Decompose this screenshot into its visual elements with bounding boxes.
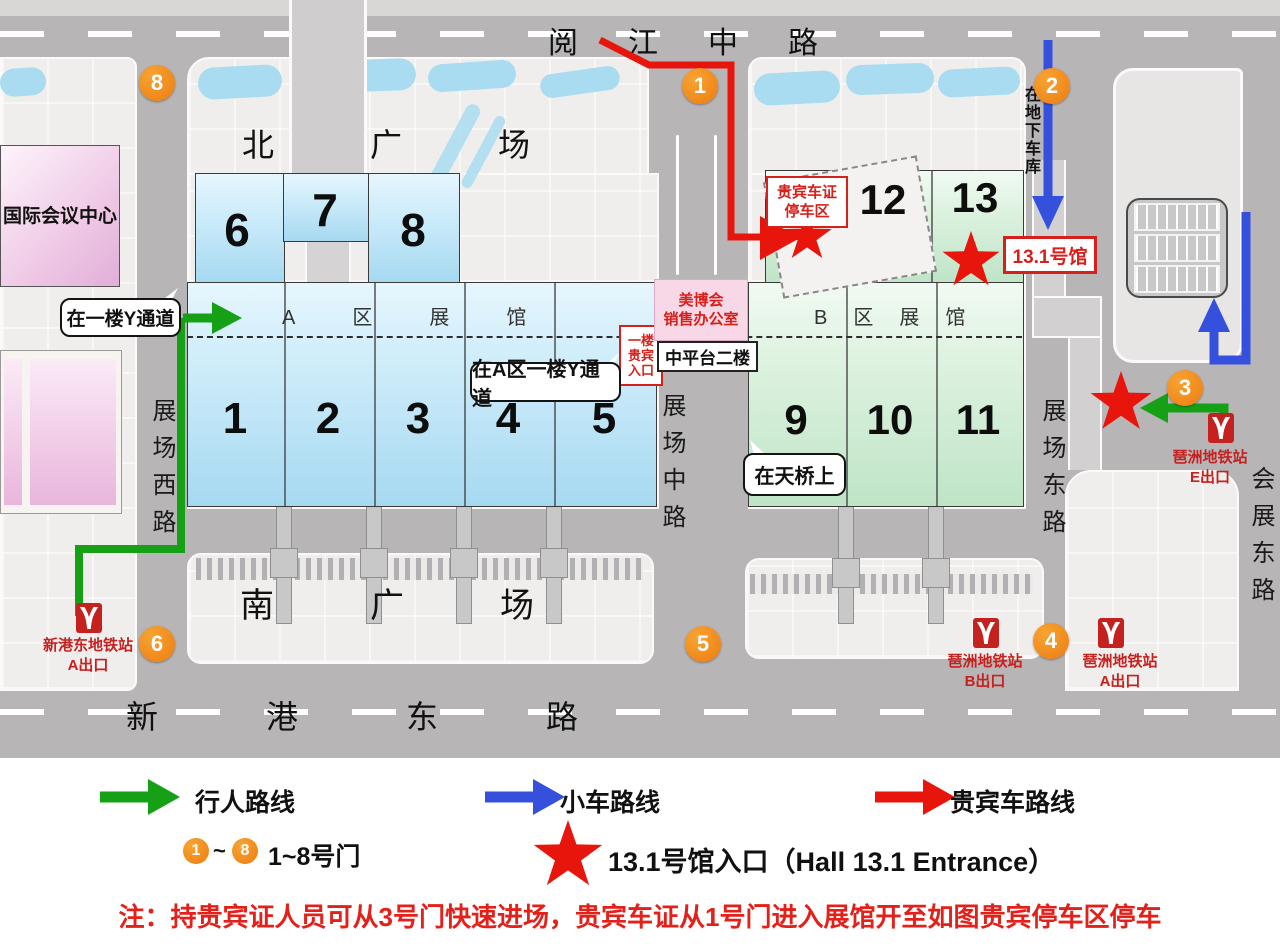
south-plaza-a-steps [196, 558, 643, 580]
a-zone-y-corridor-text: 在A区一楼Y通道 [472, 353, 619, 411]
pier-base [450, 548, 478, 578]
zone-b-label: B区展馆 [814, 301, 991, 330]
gate-1: 1 [682, 68, 718, 104]
parking-row [1134, 234, 1220, 262]
hall-13-1-text: 13.1号馆 [1013, 242, 1088, 269]
legend-gate-1-icon: 1 [183, 838, 209, 864]
south-plaza-b-steps [750, 574, 1033, 594]
y-corridor-dashed-line [187, 336, 1022, 338]
sales-office-box: 美博会 销售办公室 [654, 279, 748, 341]
legend-car-label: 小车路线 [560, 783, 660, 819]
metro-pazhou-a-label: 琶洲地铁站 A出口 [1050, 652, 1190, 692]
metro-icon-pazhou-e [1208, 413, 1234, 443]
conference-center-annex [0, 350, 122, 514]
annex-panel [30, 359, 116, 505]
legend-gates-label: 1~8号门 [268, 837, 360, 873]
parking-row [1134, 265, 1220, 293]
gate-5: 5 [685, 626, 721, 662]
station-exit: A出口 [1050, 672, 1190, 692]
vip-note: 注：持贵宾证人员可从3号门快速进场，贵宾车证从1号门进入展馆开至如图贵宾停车区停… [0, 897, 1280, 934]
station-exit: B出口 [915, 672, 1055, 692]
hall-10-number: 10 [865, 396, 915, 444]
hall-13-number: 13 [950, 174, 1000, 222]
lane-line [676, 135, 679, 275]
metro-icon-pazhou-a [1098, 618, 1124, 648]
vip-parking-callout: 贵宾车证 停车区 [766, 176, 848, 228]
vip-entrance-line2: 贵宾 [628, 348, 654, 363]
zone-a-label: A区展馆 [282, 301, 583, 330]
gate-8: 8 [139, 65, 175, 101]
east-walkway-connector [1032, 296, 1102, 338]
gate-3: 3 [1167, 370, 1203, 406]
station-exit: E出口 [1150, 468, 1270, 488]
water-strip [0, 66, 47, 97]
mid-platform-text: 中平台二楼 [665, 344, 750, 369]
road-label-xingang: 新港东路 [126, 692, 686, 738]
metro-pazhou-b-label: 琶洲地铁站 B出口 [915, 652, 1055, 692]
parking-structure [1126, 198, 1228, 298]
mid-platform-box: 中平台二楼 [657, 341, 758, 372]
annex-panel [4, 359, 22, 505]
sales-office-line1: 美博会 [678, 291, 723, 310]
station-name: 琶洲地铁站 [915, 652, 1055, 672]
legend-star-icon [534, 820, 602, 885]
lane-line [714, 135, 717, 275]
pier-base [270, 548, 298, 578]
gate-2: 2 [1034, 68, 1070, 104]
metro-pazhou-e-label: 琶洲地铁站 E出口 [1150, 448, 1270, 488]
hall-12-number: 12 [858, 176, 908, 224]
pier-base [832, 558, 860, 588]
pier-base [540, 548, 568, 578]
a-zone-y-corridor-bubble: 在A区一楼Y通道 [470, 362, 621, 402]
road-label-middle: 展场中路 [654, 393, 689, 541]
road-label-west: 展场西路 [144, 398, 179, 546]
road-label-east: 展场东路 [1034, 398, 1069, 546]
road-label-far-east: 会展东路 [1243, 466, 1278, 614]
footbridge-text: 在天桥上 [755, 460, 835, 489]
vip-entrance-line3: 入口 [628, 363, 654, 378]
top-sidewalk [0, 0, 1280, 16]
pier-base [922, 558, 950, 588]
conference-center-label: 国际会议中心 [3, 203, 117, 230]
legend-pedestrian-arrowhead [148, 779, 180, 815]
hall-13-1-callout: 13.1号馆 [1003, 236, 1097, 274]
north-plaza-label: 北广场 [242, 120, 626, 166]
legend-vip-car-label: 贵宾车路线 [950, 783, 1075, 819]
hall-7-number: 7 [300, 183, 350, 237]
y-corridor-text: 在一楼Y通道 [67, 304, 175, 331]
water-strip [937, 66, 1020, 98]
water-strip [197, 64, 283, 100]
hall-3-number: 3 [393, 394, 443, 444]
gate-4: 4 [1033, 623, 1069, 659]
vip-parking-line1: 贵宾车证 [777, 183, 837, 202]
hall-6-number: 6 [212, 203, 262, 257]
water-strip [846, 62, 935, 95]
legend-star-label: 13.1号馆入口（Hall 13.1 Entrance） [608, 840, 1055, 879]
north-footbridge-stub [305, 240, 351, 284]
hall-11-number: 11 [953, 396, 1003, 444]
station-exit: A出口 [8, 656, 168, 676]
metro-icon-xingangdong [76, 603, 102, 633]
footbridge-bubble: 在天桥上 [743, 453, 846, 496]
map-page: 国际会议中心 6 7 8 A区展馆 1 2 3 4 5 能 12 13 B区展馆… [0, 0, 1280, 945]
metro-icon-pazhou-b [973, 618, 999, 648]
hall-8-number: 8 [388, 203, 438, 257]
south-plaza-label: 南广场 [240, 578, 630, 627]
legend-gate-8-icon: 8 [232, 838, 258, 864]
sales-office-line2: 销售办公室 [663, 310, 738, 329]
legend-gate-tilde: ~ [213, 838, 226, 864]
underground-garage-label: 在地下车库 [1018, 86, 1042, 176]
hall-9-number: 9 [771, 396, 821, 444]
conference-center: 国际会议中心 [0, 145, 120, 287]
legend-pedestrian-label: 行人路线 [195, 783, 295, 819]
hall-2-number: 2 [303, 394, 353, 444]
y-corridor-bubble: 在一楼Y通道 [60, 298, 181, 337]
station-name: 琶洲地铁站 [1050, 652, 1190, 672]
vip-entrance-line1: 一楼 [628, 333, 654, 348]
vip-parking-line2: 停车区 [784, 202, 829, 221]
station-name: 琶洲地铁站 [1150, 448, 1270, 468]
parking-row [1134, 203, 1220, 231]
water-strip [753, 70, 841, 106]
pier-base [360, 548, 388, 578]
hall-1-number: 1 [210, 394, 260, 444]
road-label-yuejiang: 阅江中路 [548, 18, 868, 62]
gate-6: 6 [139, 626, 175, 662]
